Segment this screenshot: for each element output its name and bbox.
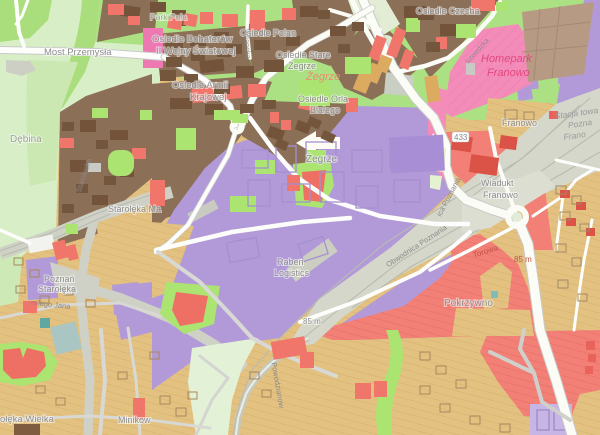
svg-text:85 m: 85 m [514,255,532,264]
svg-text:Krajowej: Krajowej [190,92,226,103]
svg-text:Minikow: Minikow [118,415,151,425]
svg-text:Osiedle Orla: Osiedle Orla [298,94,348,104]
svg-text:Raben: Raben [277,257,304,267]
svg-text:Osiedle Armii: Osiedle Armii [172,80,228,91]
svg-text:Franowo: Franowo [502,118,537,128]
svg-text:Osiedle Stare: Osiedle Stare [276,50,331,60]
svg-text:ołęka Wielka: ołęka Wielka [0,414,55,425]
svg-text:Most Przemysła: Most Przemysła [44,47,112,58]
svg-text:85 m: 85 m [303,317,321,326]
svg-text:Białego: Białego [310,105,340,115]
svg-text:II Wojny Światowej: II Wojny Światowej [156,45,236,57]
svg-text:Wiadukt: Wiadukt [481,178,514,188]
svg-text:Żegrze: Żegrze [305,71,340,83]
svg-text:Franowo: Franowo [487,67,530,79]
svg-text:Żegrze: Żegrze [306,152,338,165]
svg-text:Osiedle Czecha: Osiedle Czecha [416,6,480,16]
svg-text:Homepark: Homepark [481,53,532,65]
svg-text:Osiedle Bohaterów: Osiedle Bohaterów [152,34,232,45]
svg-text:Franowo: Franowo [483,190,518,200]
svg-text:Starołęka: Starołęka [38,284,76,294]
svg-text:Dębina: Dębina [10,134,42,145]
svg-text:Żegrze: Żegrze [288,61,316,71]
svg-text:Poznań: Poznań [44,274,75,284]
svg-text:Starołęka Ma: Starołęka Ma [108,204,161,214]
svg-text:Park Pola: Park Pola [150,12,187,22]
svg-text:Logistics: Logistics [274,268,310,278]
svg-text:433: 433 [454,133,468,142]
svg-text:Pokrzywno: Pokrzywno [444,298,493,309]
